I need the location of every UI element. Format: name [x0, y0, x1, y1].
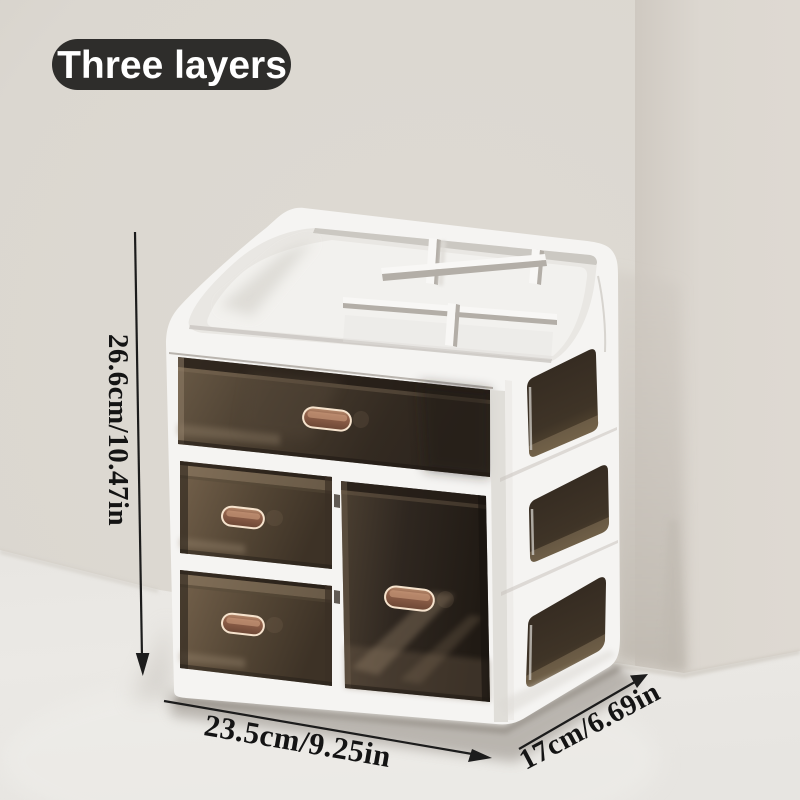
- svg-text:Three layers: Three layers: [57, 44, 287, 87]
- svg-text:26.6cm/10.47in: 26.6cm/10.47in: [102, 334, 134, 526]
